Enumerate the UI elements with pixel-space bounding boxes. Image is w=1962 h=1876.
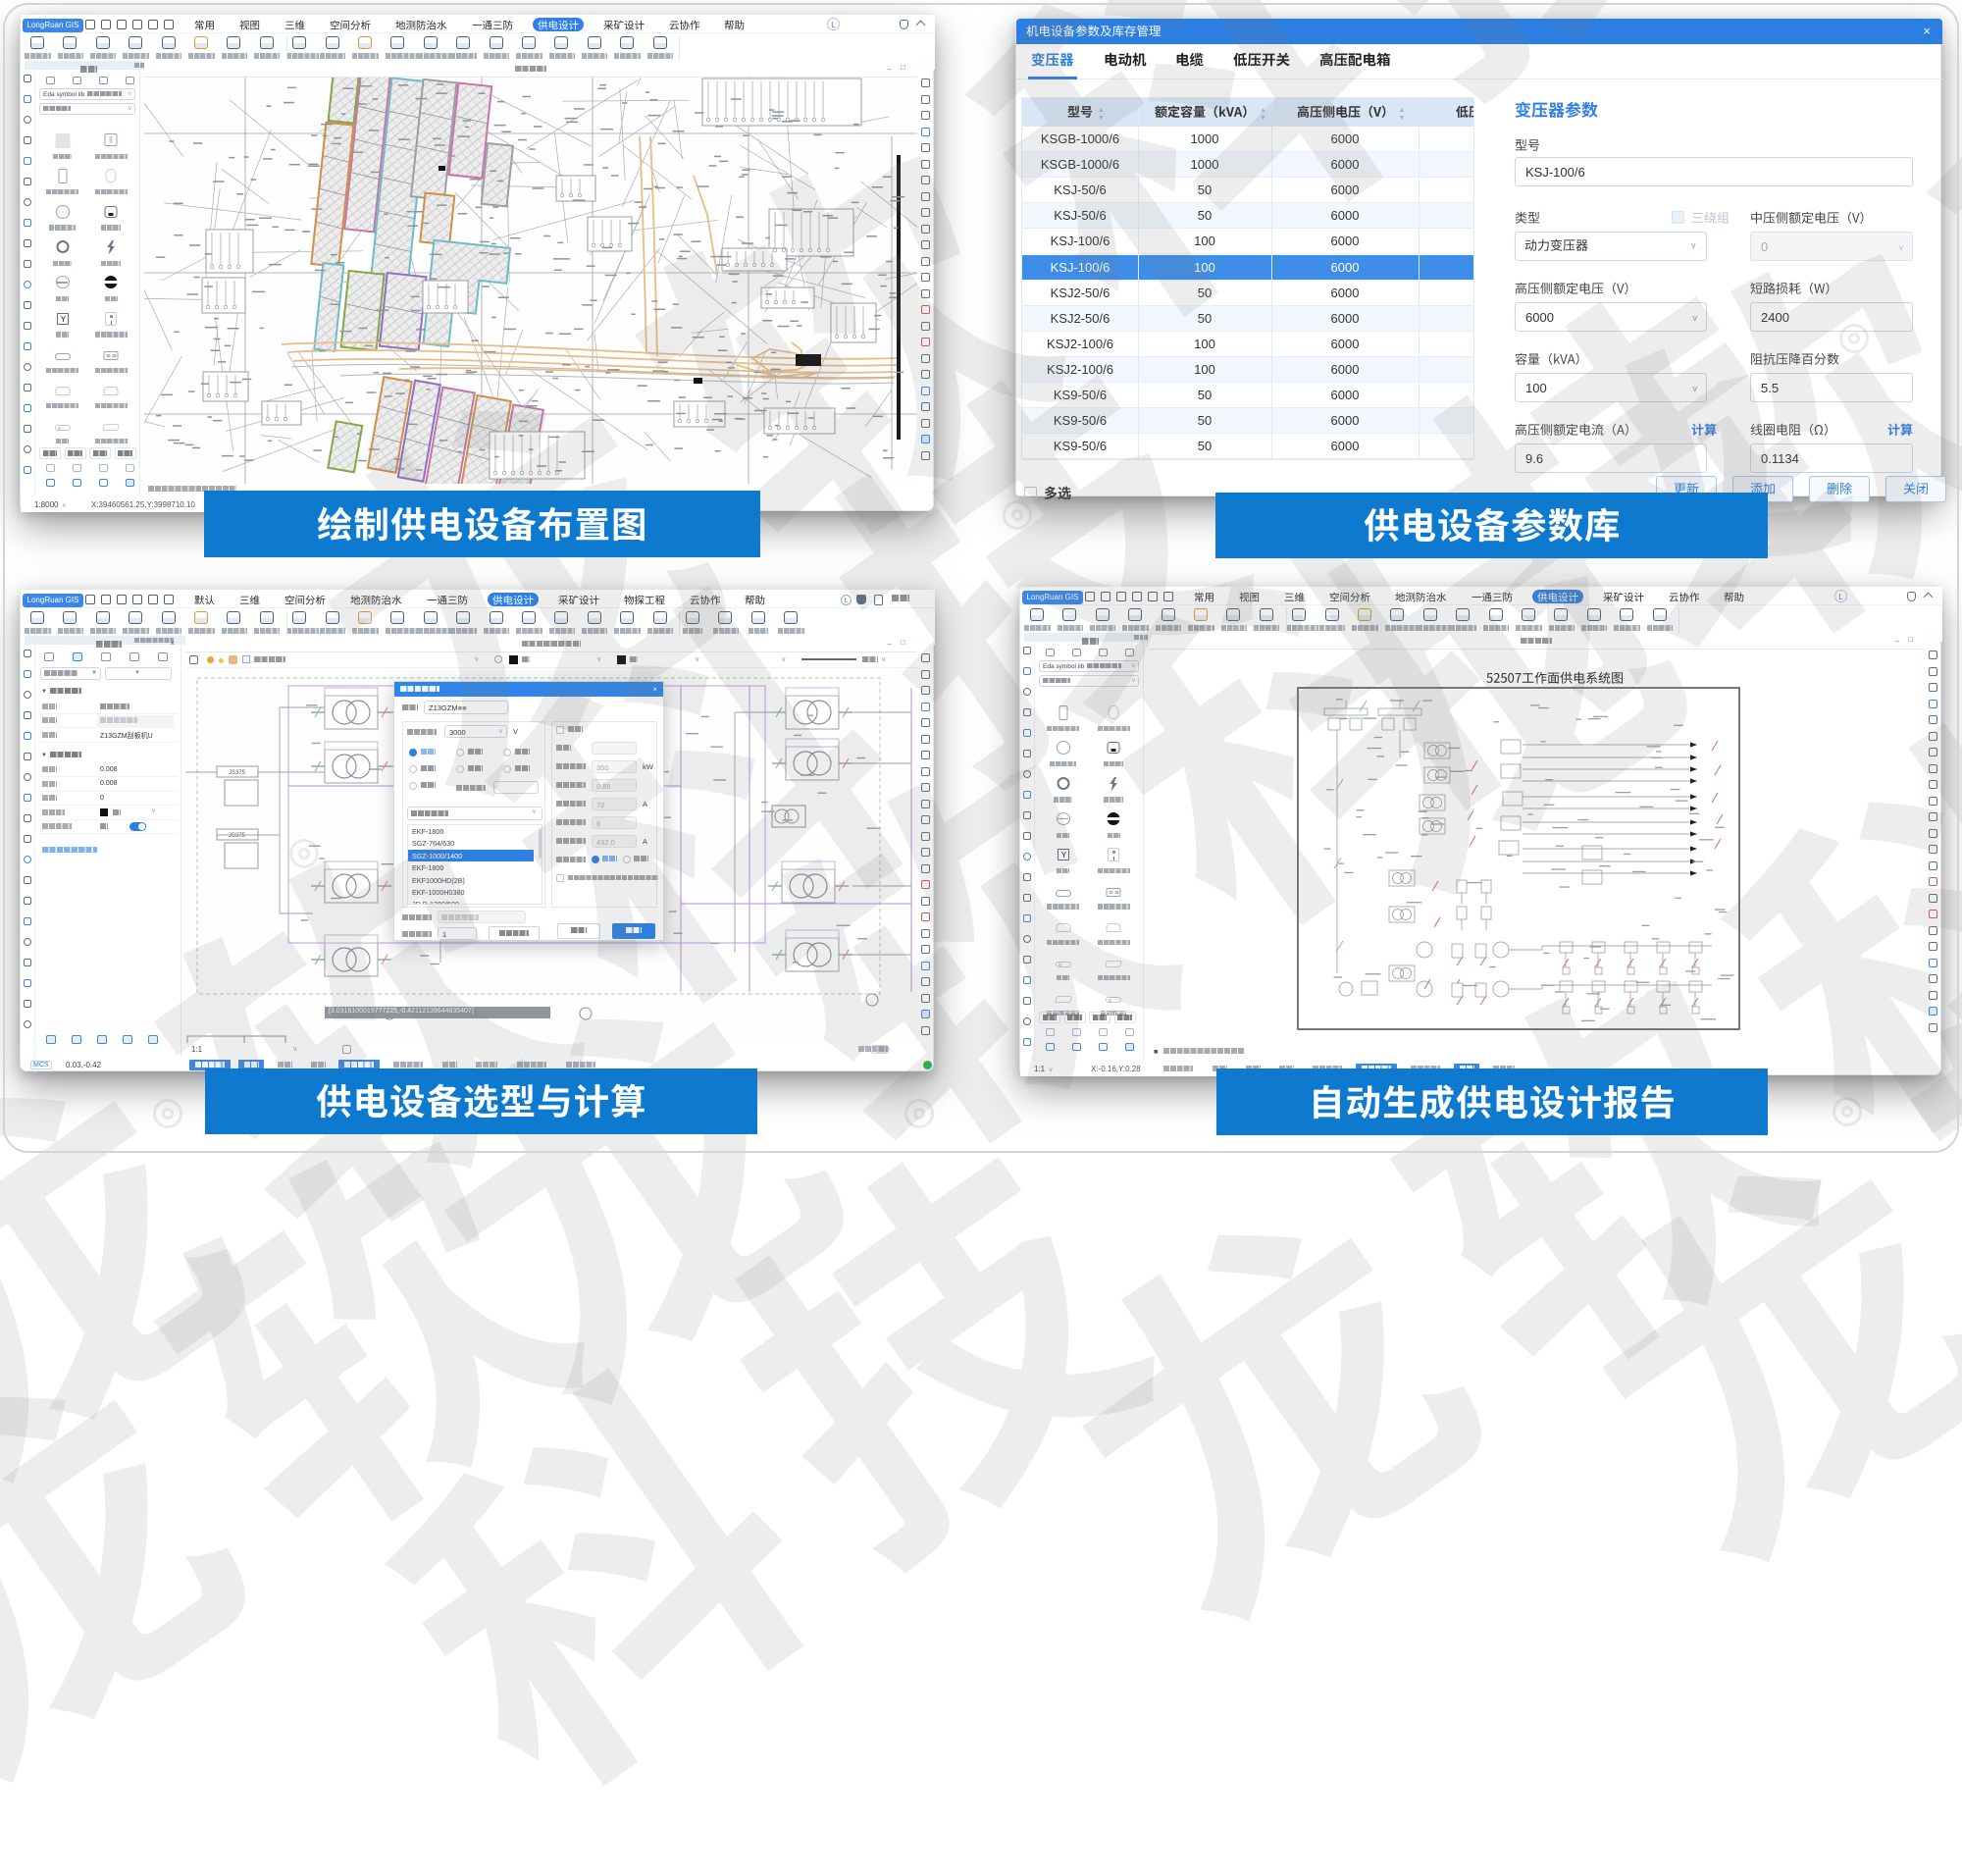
svg-text:JS375: JS375 <box>229 770 246 776</box>
svg-text:JS375: JS375 <box>229 833 246 839</box>
